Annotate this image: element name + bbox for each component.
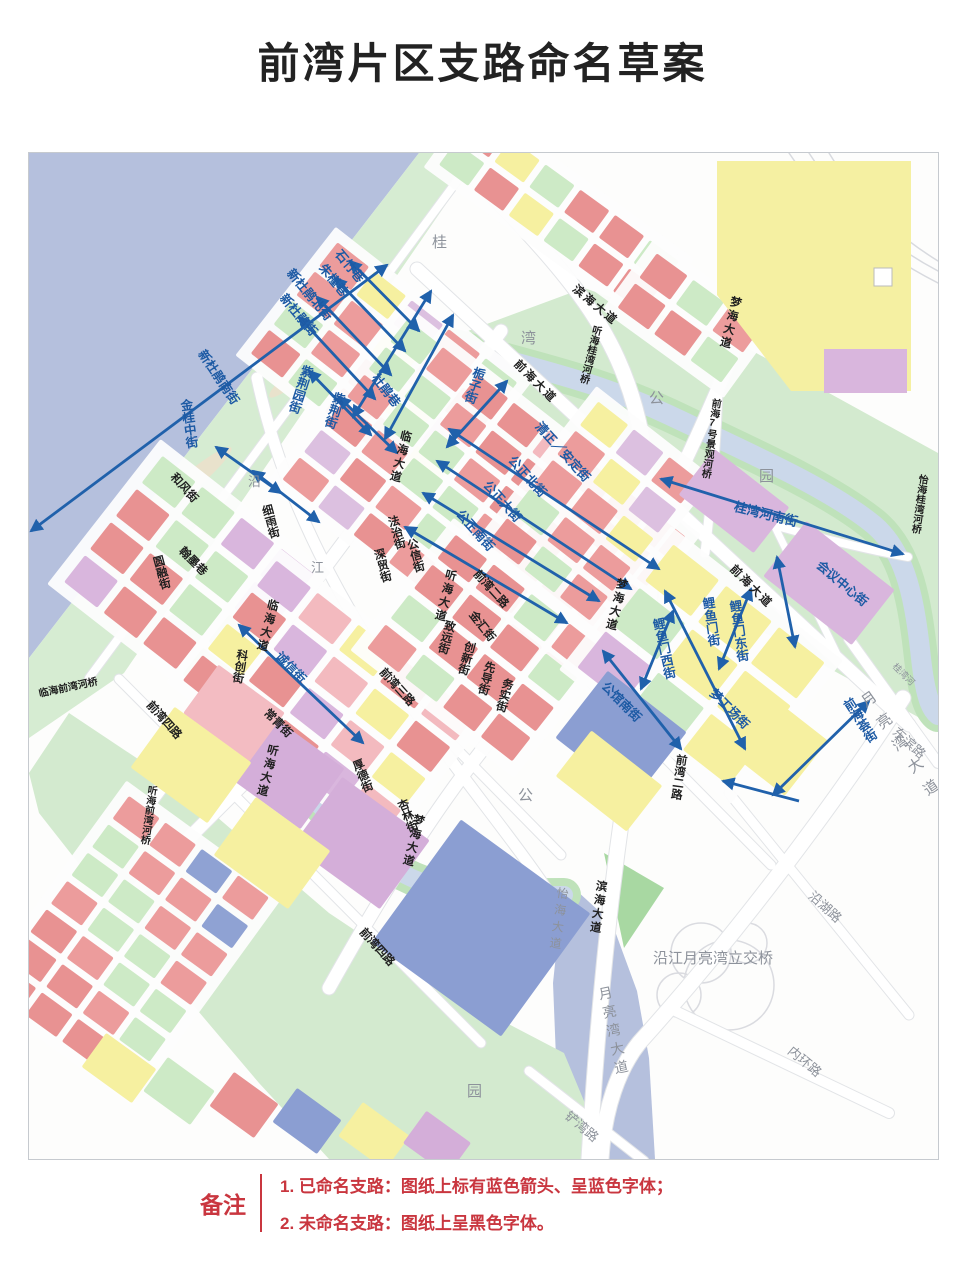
notes-divider bbox=[260, 1174, 262, 1232]
notes-label: 备注 bbox=[200, 1186, 246, 1220]
landuse-layer bbox=[29, 153, 938, 1159]
notes: 备注 1. 已命名支路：图纸上标有蓝色箭头、呈蓝色字体； 2. 未命名支路：图纸… bbox=[200, 1172, 673, 1234]
note-item-2: 2. 未命名支路：图纸上呈黑色字体。 bbox=[280, 1209, 673, 1234]
map-canvas: 石竹巷朱槿巷新杜鹃北街新杜鹃街新杜鹃南街金桂中街紫荆园街紫荆街杜鹃巷栀子街清正／… bbox=[28, 152, 939, 1160]
notes-items: 1. 已命名支路：图纸上标有蓝色箭头、呈蓝色字体； 2. 未命名支路：图纸上呈黑… bbox=[280, 1172, 673, 1234]
map-base-graphics bbox=[29, 153, 938, 1159]
note-item-1: 1. 已命名支路：图纸上标有蓝色箭头、呈蓝色字体； bbox=[280, 1172, 673, 1197]
page-title: 前湾片区支路命名草案 bbox=[0, 30, 965, 91]
